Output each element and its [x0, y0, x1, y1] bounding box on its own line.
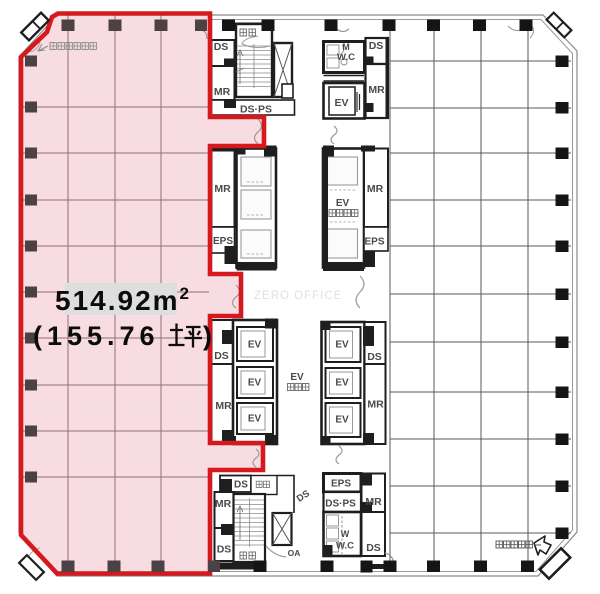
svg-text:EV: EV: [248, 378, 262, 389]
svg-text:W: W: [341, 529, 350, 539]
svg-text:MR: MR: [214, 183, 231, 195]
svg-text:EPS: EPS: [364, 237, 384, 248]
svg-text:514.92m2: 514.92m2: [55, 284, 191, 316]
svg-text:EPS: EPS: [331, 479, 351, 490]
svg-text:): ): [203, 321, 212, 351]
svg-text:EV: EV: [335, 340, 349, 351]
svg-text:EV: EV: [336, 198, 350, 209]
svg-text:DS: DS: [214, 41, 229, 53]
svg-text:DS·PS: DS·PS: [325, 499, 356, 510]
svg-text:EV: EV: [334, 97, 348, 109]
svg-text:EV: EV: [335, 415, 349, 426]
svg-text:DS·PS: DS·PS: [240, 104, 272, 116]
svg-text:DS: DS: [217, 544, 232, 556]
svg-text:W.C: W.C: [337, 52, 355, 63]
svg-text:ZERO OFFICE: ZERO OFFICE: [254, 290, 342, 302]
svg-text:MR: MR: [215, 498, 232, 510]
svg-text:MR: MR: [367, 183, 384, 195]
svg-text:(155.76: (155.76: [33, 321, 160, 351]
svg-text:OA: OA: [288, 548, 301, 558]
svg-text:EV: EV: [290, 372, 304, 383]
svg-text:DS: DS: [366, 542, 381, 554]
svg-text:MR: MR: [368, 84, 385, 96]
svg-text:DS: DS: [367, 351, 382, 363]
svg-text:MR: MR: [214, 86, 231, 98]
svg-text:MR: MR: [215, 400, 232, 412]
svg-text:MR: MR: [365, 496, 382, 508]
svg-text:EV: EV: [248, 414, 262, 425]
svg-text:DS: DS: [369, 40, 384, 52]
svg-text:MR: MR: [367, 399, 384, 411]
svg-text:W.C: W.C: [336, 541, 354, 552]
svg-text:EV: EV: [248, 340, 262, 351]
svg-text:DS: DS: [214, 350, 229, 362]
svg-text:EPS: EPS: [213, 236, 233, 247]
svg-text:EV: EV: [335, 378, 349, 389]
svg-text:M: M: [342, 42, 350, 52]
svg-text:DS: DS: [234, 480, 248, 491]
